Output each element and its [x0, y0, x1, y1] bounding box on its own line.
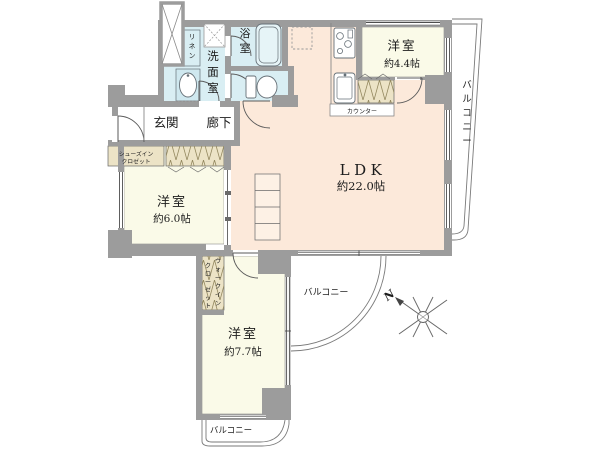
compass-north-arrow [395, 297, 404, 306]
floor-plan-svg: N LDK 約22.0帖 洋室 約4.4帖 洋室 約6.0帖 洋室 約7.7帖 … [0, 0, 600, 450]
label-bedroom-44-size: 約4.4帖 [384, 57, 420, 70]
floor-plan: N LDK 約22.0帖 洋室 約4.4帖 洋室 約6.0帖 洋室 約7.7帖 … [0, 0, 600, 450]
label-shoes-closet-1: シューズイン [119, 150, 154, 158]
bathtub [256, 24, 281, 66]
label-counter: カウンター [347, 108, 377, 116]
toilet-bowl [257, 76, 277, 98]
label-wic-left: クローゼット [205, 263, 211, 310]
label-bedroom-60-name: 洋室 [157, 194, 187, 210]
label-ldk-name: LDK [340, 161, 387, 179]
label-bedroom-77-name: 洋室 [228, 326, 258, 342]
label-linen: リネン [189, 33, 196, 60]
label-balcony-right: バルコニー [462, 80, 472, 147]
label-washroom: 洗面室 [207, 49, 219, 95]
ldk-floor-kitchen [288, 27, 356, 250]
balcony-middle-outline [291, 256, 386, 351]
label-shoes-closet-2: クロゼット [122, 158, 151, 166]
label-balcony-bottom: バルコニー [210, 426, 252, 436]
ldk-floor-door-area [240, 101, 288, 146]
label-entrance: 玄関 [153, 115, 178, 130]
compass-north-label: N [381, 287, 398, 305]
label-bedroom-44-name: 洋室 [387, 38, 416, 53]
bedroom-60-closet-hatch [166, 146, 224, 166]
compass-icon: N [381, 287, 447, 337]
label-bedroom-60-size: 約6.0帖 [153, 212, 191, 225]
label-hallway: 廊下 [206, 115, 231, 130]
label-balcony-middle: バルコニー [304, 287, 349, 298]
entrance-door-gap [112, 116, 118, 142]
label-bedroom-77-size: 約7.7帖 [224, 345, 262, 358]
toilet-tank [246, 76, 256, 98]
bedroom-44-closet-hatch [358, 80, 394, 103]
label-ldk-size: 約22.0帖 [337, 179, 386, 193]
